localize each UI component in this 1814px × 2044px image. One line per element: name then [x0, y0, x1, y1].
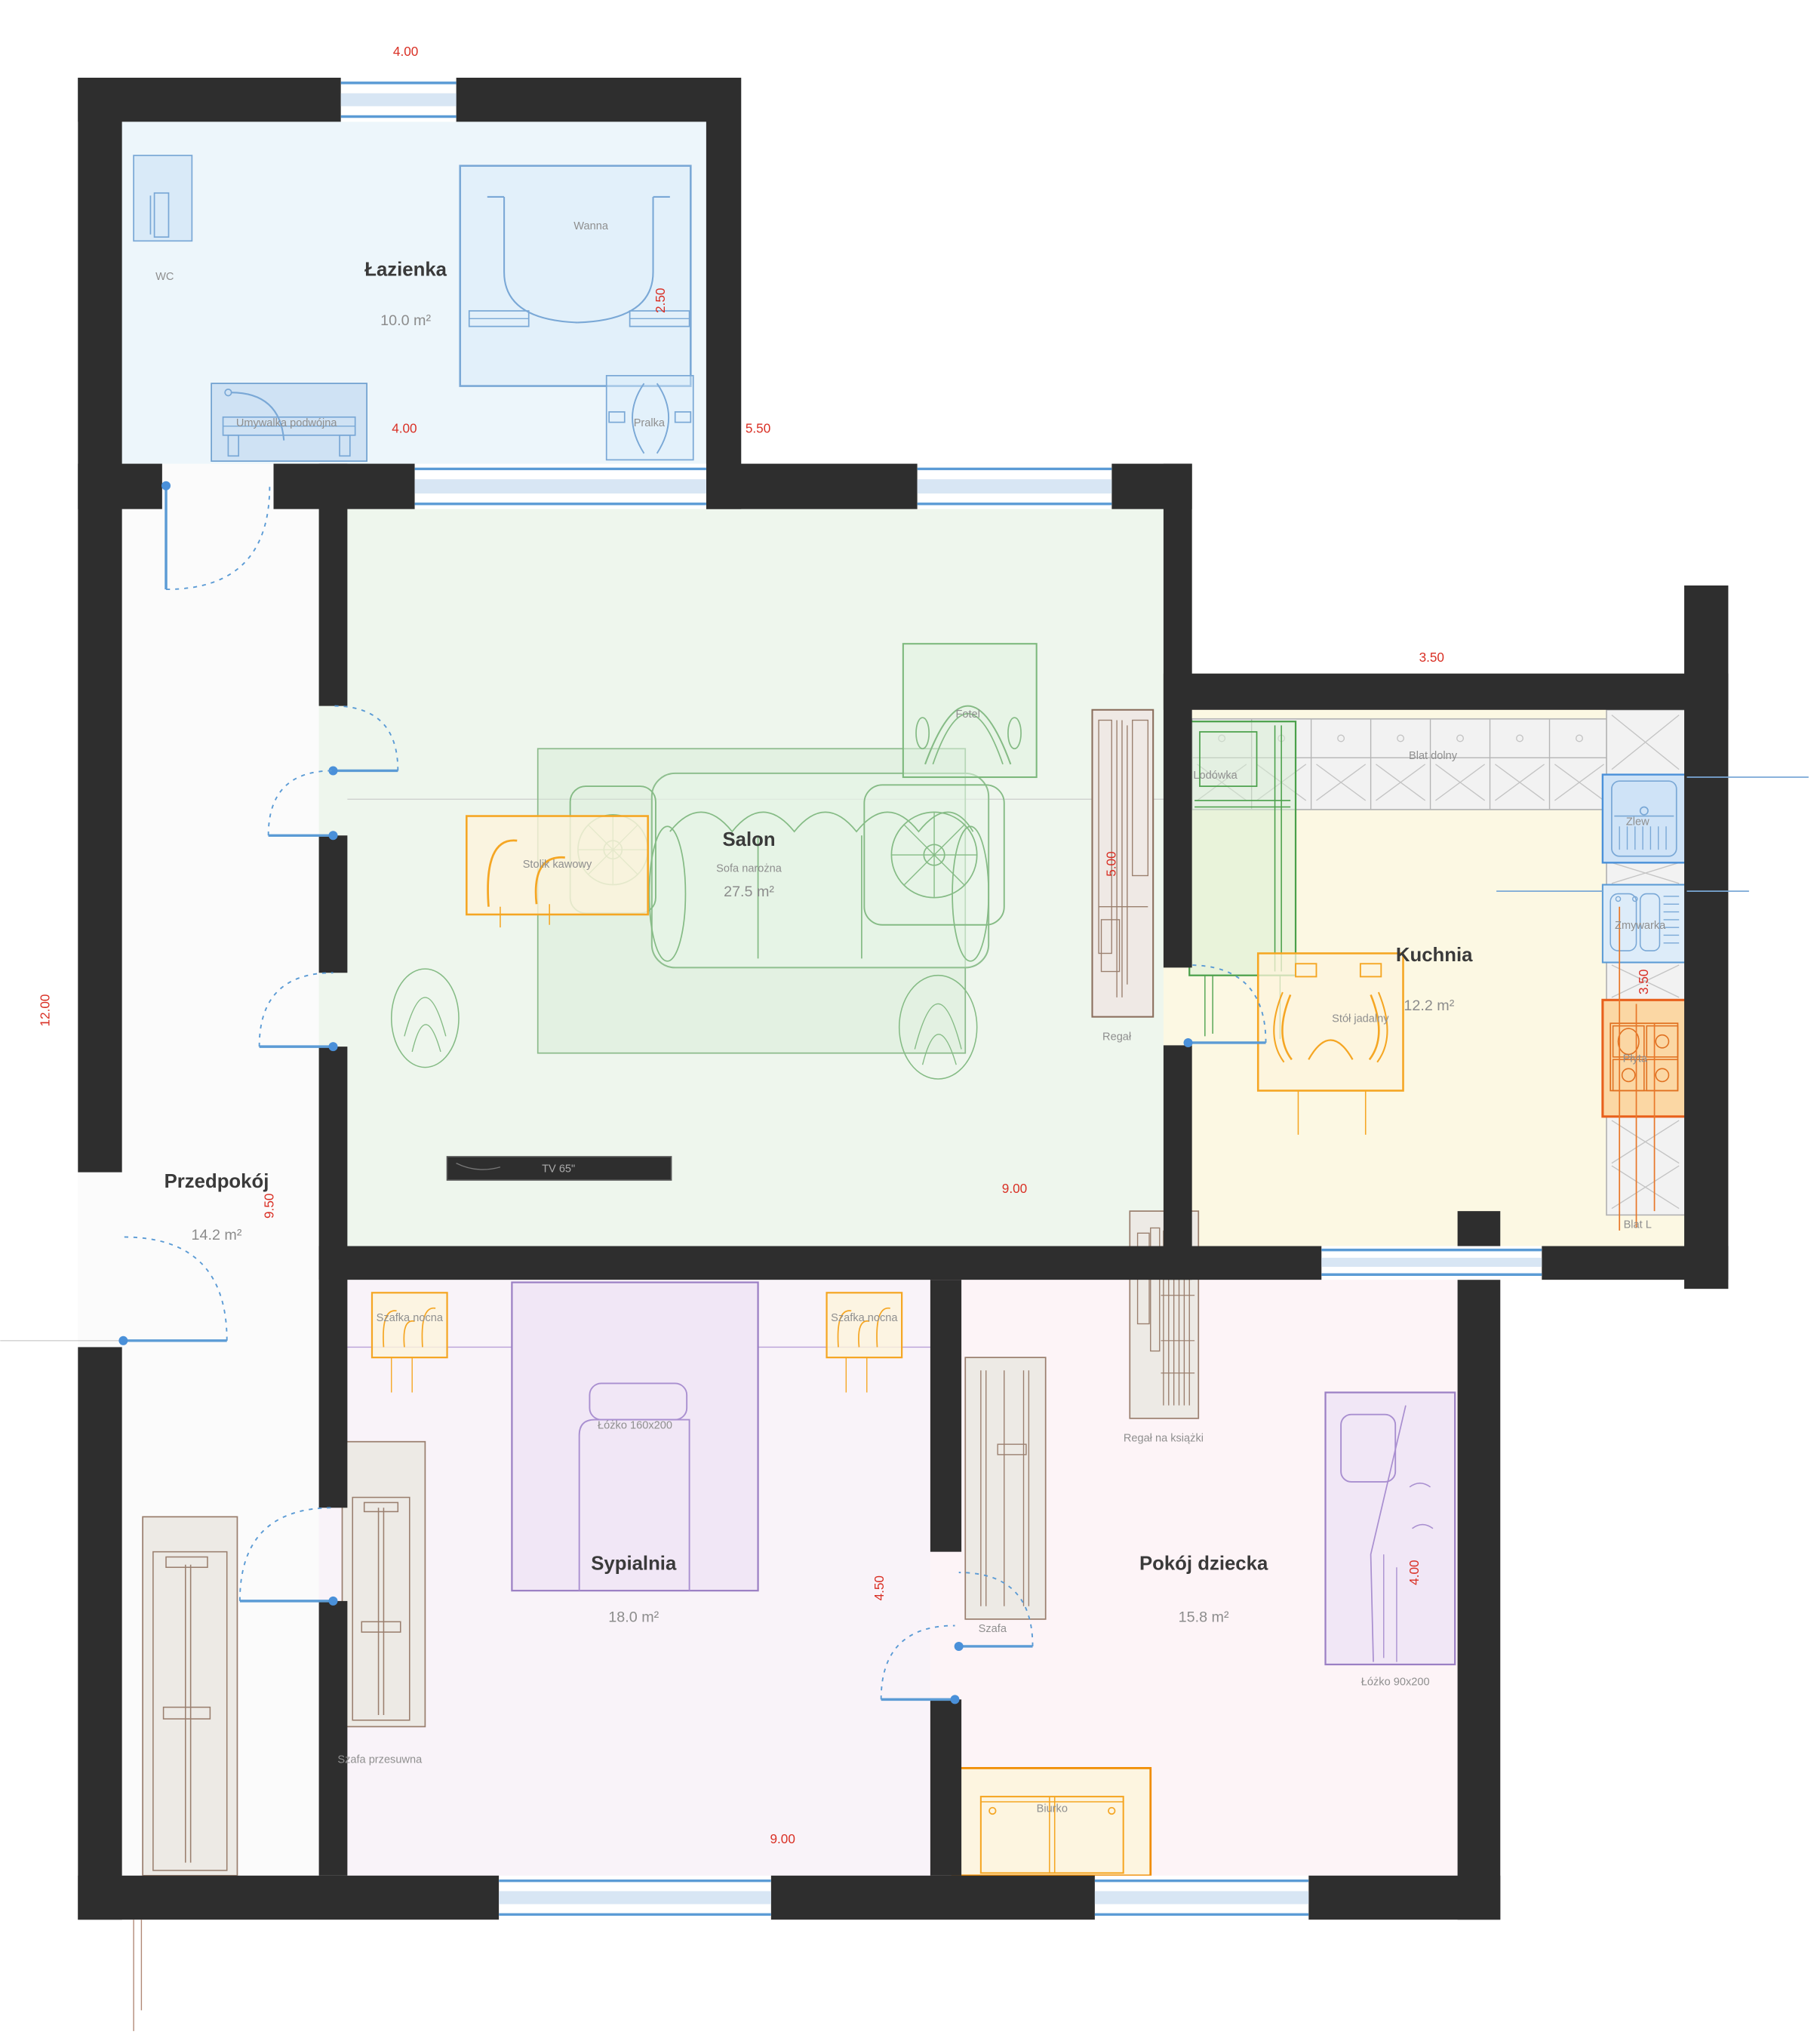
label-biurko: Biurko: [1037, 1803, 1068, 1815]
floor-plan-canvas: Łazienka 10.0 m² Salon Sofa narożna 27.5…: [0, 0, 1814, 2044]
dim-bath-height: 2.50: [653, 288, 668, 313]
label-fotel: Fotel: [955, 708, 979, 721]
label-tv: TV 65": [542, 1163, 575, 1176]
dim-kitchen-top: 3.50: [1419, 650, 1444, 665]
label-wc: WC: [155, 271, 174, 283]
room-sypialnia-title: Sypialnia: [591, 1554, 677, 1575]
dim-left-total: 12.00: [38, 994, 53, 1027]
label-blat-dolny: Blat dolny: [1409, 750, 1458, 762]
label-plyta: Płyta: [1623, 1053, 1648, 1065]
dim-child-bed: 4.00: [1407, 1560, 1422, 1584]
label-umywalka: Umywalka podwójna: [236, 417, 338, 429]
window-salon-left: [415, 464, 706, 509]
room-przedpokoj-area: 14.2 m²: [192, 1227, 242, 1243]
fixture-wanna: [460, 166, 691, 386]
window-sypialnia-bottom: [499, 1876, 771, 1920]
dim-bath-width: 4.00: [392, 420, 417, 435]
label-szafka-nocna-1: Szafka nocna: [377, 1312, 444, 1324]
window-lazienka-top: [341, 78, 457, 121]
label-lozko-160: Łóżko 160x200: [598, 1420, 672, 1432]
label-regal-ksiazki: Regał na książki: [1124, 1433, 1204, 1445]
window-kuchnia-bottom: [1321, 1246, 1542, 1280]
label-regal: Regał: [1102, 1031, 1132, 1044]
label-szafa: Szafa: [979, 1623, 1007, 1635]
label-sofa: Sofa narożna: [716, 862, 782, 874]
label-zmywarka: Zmywarka: [1615, 920, 1666, 932]
label-lozko-90: Łóżko 90x200: [1361, 1676, 1430, 1688]
furniture-biurko: [952, 1768, 1151, 1875]
dim-right-bath: 5.50: [746, 420, 770, 435]
room-lazienka-title: Łazienka: [364, 260, 447, 281]
room-kuchnia-area: 12.2 m²: [1404, 997, 1454, 1014]
label-pralka: Pralka: [634, 417, 666, 429]
dim-bottom: 9.00: [770, 1831, 795, 1846]
furniture-lozko-90: [1326, 1392, 1456, 1664]
room-sypialnia-area: 18.0 m²: [608, 1609, 659, 1625]
room-salon-area: 27.5 m²: [724, 884, 774, 900]
window-salon-right: [918, 464, 1112, 509]
floor-plan-page: Łazienka 10.0 m² Salon Sofa narożna 27.5…: [0, 0, 1814, 2044]
label-stol: Stół jadalny: [1332, 1013, 1389, 1025]
room-przedpokoj-title: Przedpokój: [164, 1171, 269, 1192]
dim-salon-width: 9.00: [1002, 1181, 1027, 1196]
room-dziecko-area: 15.8 m²: [1179, 1609, 1229, 1625]
room-salon-title: Salon: [723, 829, 776, 850]
furniture-szafa-przesuwna: [343, 1442, 426, 1727]
label-zlew: Zlew: [1626, 816, 1650, 828]
label-szafka-nocna-2: Szafka nocna: [831, 1312, 898, 1324]
dim-regal: 5.00: [1103, 851, 1118, 876]
dim-top-bath: 4.00: [393, 44, 418, 59]
furniture-szafa-dziecko: [965, 1357, 1045, 1619]
leader-lines-bottom: [134, 1920, 141, 2031]
label-lodowka: Lodówka: [1193, 770, 1238, 782]
label-stolik: Stolik kawowy: [523, 859, 592, 871]
window-dziecko-bottom: [1095, 1876, 1308, 1920]
label-blat-l: Blat L: [1624, 1219, 1652, 1231]
furniture-lozko-160: [512, 1283, 758, 1591]
furniture-szafa-przedpokoj: [143, 1517, 237, 1876]
room-kuchnia-title: Kuchnia: [1396, 945, 1473, 966]
furniture-stolik-kawowy: [466, 816, 647, 928]
room-lazienka-area: 10.0 m²: [380, 312, 431, 329]
fixture-wc: [134, 155, 192, 241]
furniture-regal: [1092, 710, 1153, 1017]
dim-przedpokoj: 9.50: [262, 1194, 277, 1219]
dim-kitchen-right: 3.50: [1636, 970, 1651, 994]
dim-bedroom-door: 4.50: [872, 1575, 887, 1600]
label-wanna: Wanna: [573, 220, 609, 232]
furniture-sofa: [649, 773, 988, 968]
room-dziecko-title: Pokój dziecka: [1139, 1554, 1268, 1575]
label-szafa-przesuwna: Szafa przesuwna: [337, 1754, 423, 1766]
